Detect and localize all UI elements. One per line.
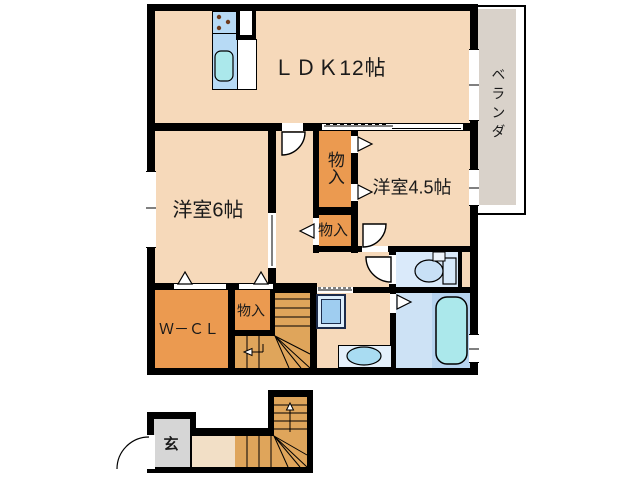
stairs-2f-upper-run [275, 293, 310, 336]
entrance-door-arc [117, 437, 149, 469]
storage-mid-wall [313, 207, 358, 215]
wcl-door-opening [174, 284, 226, 289]
kitchen-sink-counter [212, 33, 239, 90]
room6-window [146, 171, 156, 248]
stairs-1f-lower-run [235, 436, 307, 467]
storage-upper-door-opening-2 [351, 184, 358, 201]
storage-stairs-door-opening [239, 284, 273, 289]
storage-upper-door-opening-1 [351, 136, 358, 153]
storage-upper-label: 物入 [325, 151, 343, 185]
entrance-label: 玄 [163, 437, 178, 453]
outer-wall-bottom [147, 368, 478, 375]
bath-door-opening [390, 294, 396, 313]
stairs-1f-upper-run [274, 397, 307, 436]
toilet-right-wall [458, 252, 462, 287]
storage-stairs-label: 物入 [237, 304, 265, 319]
floor-plan: ＬＤＫ12帖 ベランダ 洋室6帖 洋室4.5帖 物入 物入 物入 Ｗ－ＣＬ 玄 [0, 0, 638, 480]
stairs-2f-lower-run [235, 336, 310, 368]
entrance-door-opening [147, 435, 155, 469]
ldk-sliding-door-opening [322, 124, 463, 130]
room6-sliding-door-opening [268, 213, 276, 268]
kitchen-wall-niche [240, 11, 252, 35]
bathtub-surround [432, 293, 470, 368]
room45-door-opening [362, 246, 388, 252]
storage-hall-label: 物入 [318, 223, 348, 239]
walk-in-closet-label: Ｗ－ＣＬ [159, 322, 219, 338]
toilet-room-floor [396, 252, 458, 287]
storage-stairs-bottom-wall [235, 330, 275, 336]
kitchen-stove [212, 11, 239, 35]
veranda-label: ベランダ [491, 67, 506, 143]
ldk-label: ＬＤＫ12帖 [273, 58, 386, 80]
western-room-6-label: 洋室6帖 [172, 201, 243, 222]
toilet-door-opening [389, 255, 396, 284]
entrance-hall-floor [190, 436, 237, 467]
outer-wall-top [147, 4, 478, 11]
washing-machine-pan-inner [321, 299, 341, 324]
ldk-door-opening [282, 123, 303, 131]
ldk-veranda-window [469, 49, 479, 121]
washroom-sliding-opening [317, 287, 353, 293]
vanity-counter [338, 345, 392, 368]
wcl-right-wall [228, 290, 235, 368]
kitchen-counter [237, 39, 257, 90]
room45-veranda-window [469, 169, 479, 206]
bath-window [469, 334, 479, 363]
western-room-45-label: 洋室4.5帖 [372, 179, 451, 198]
